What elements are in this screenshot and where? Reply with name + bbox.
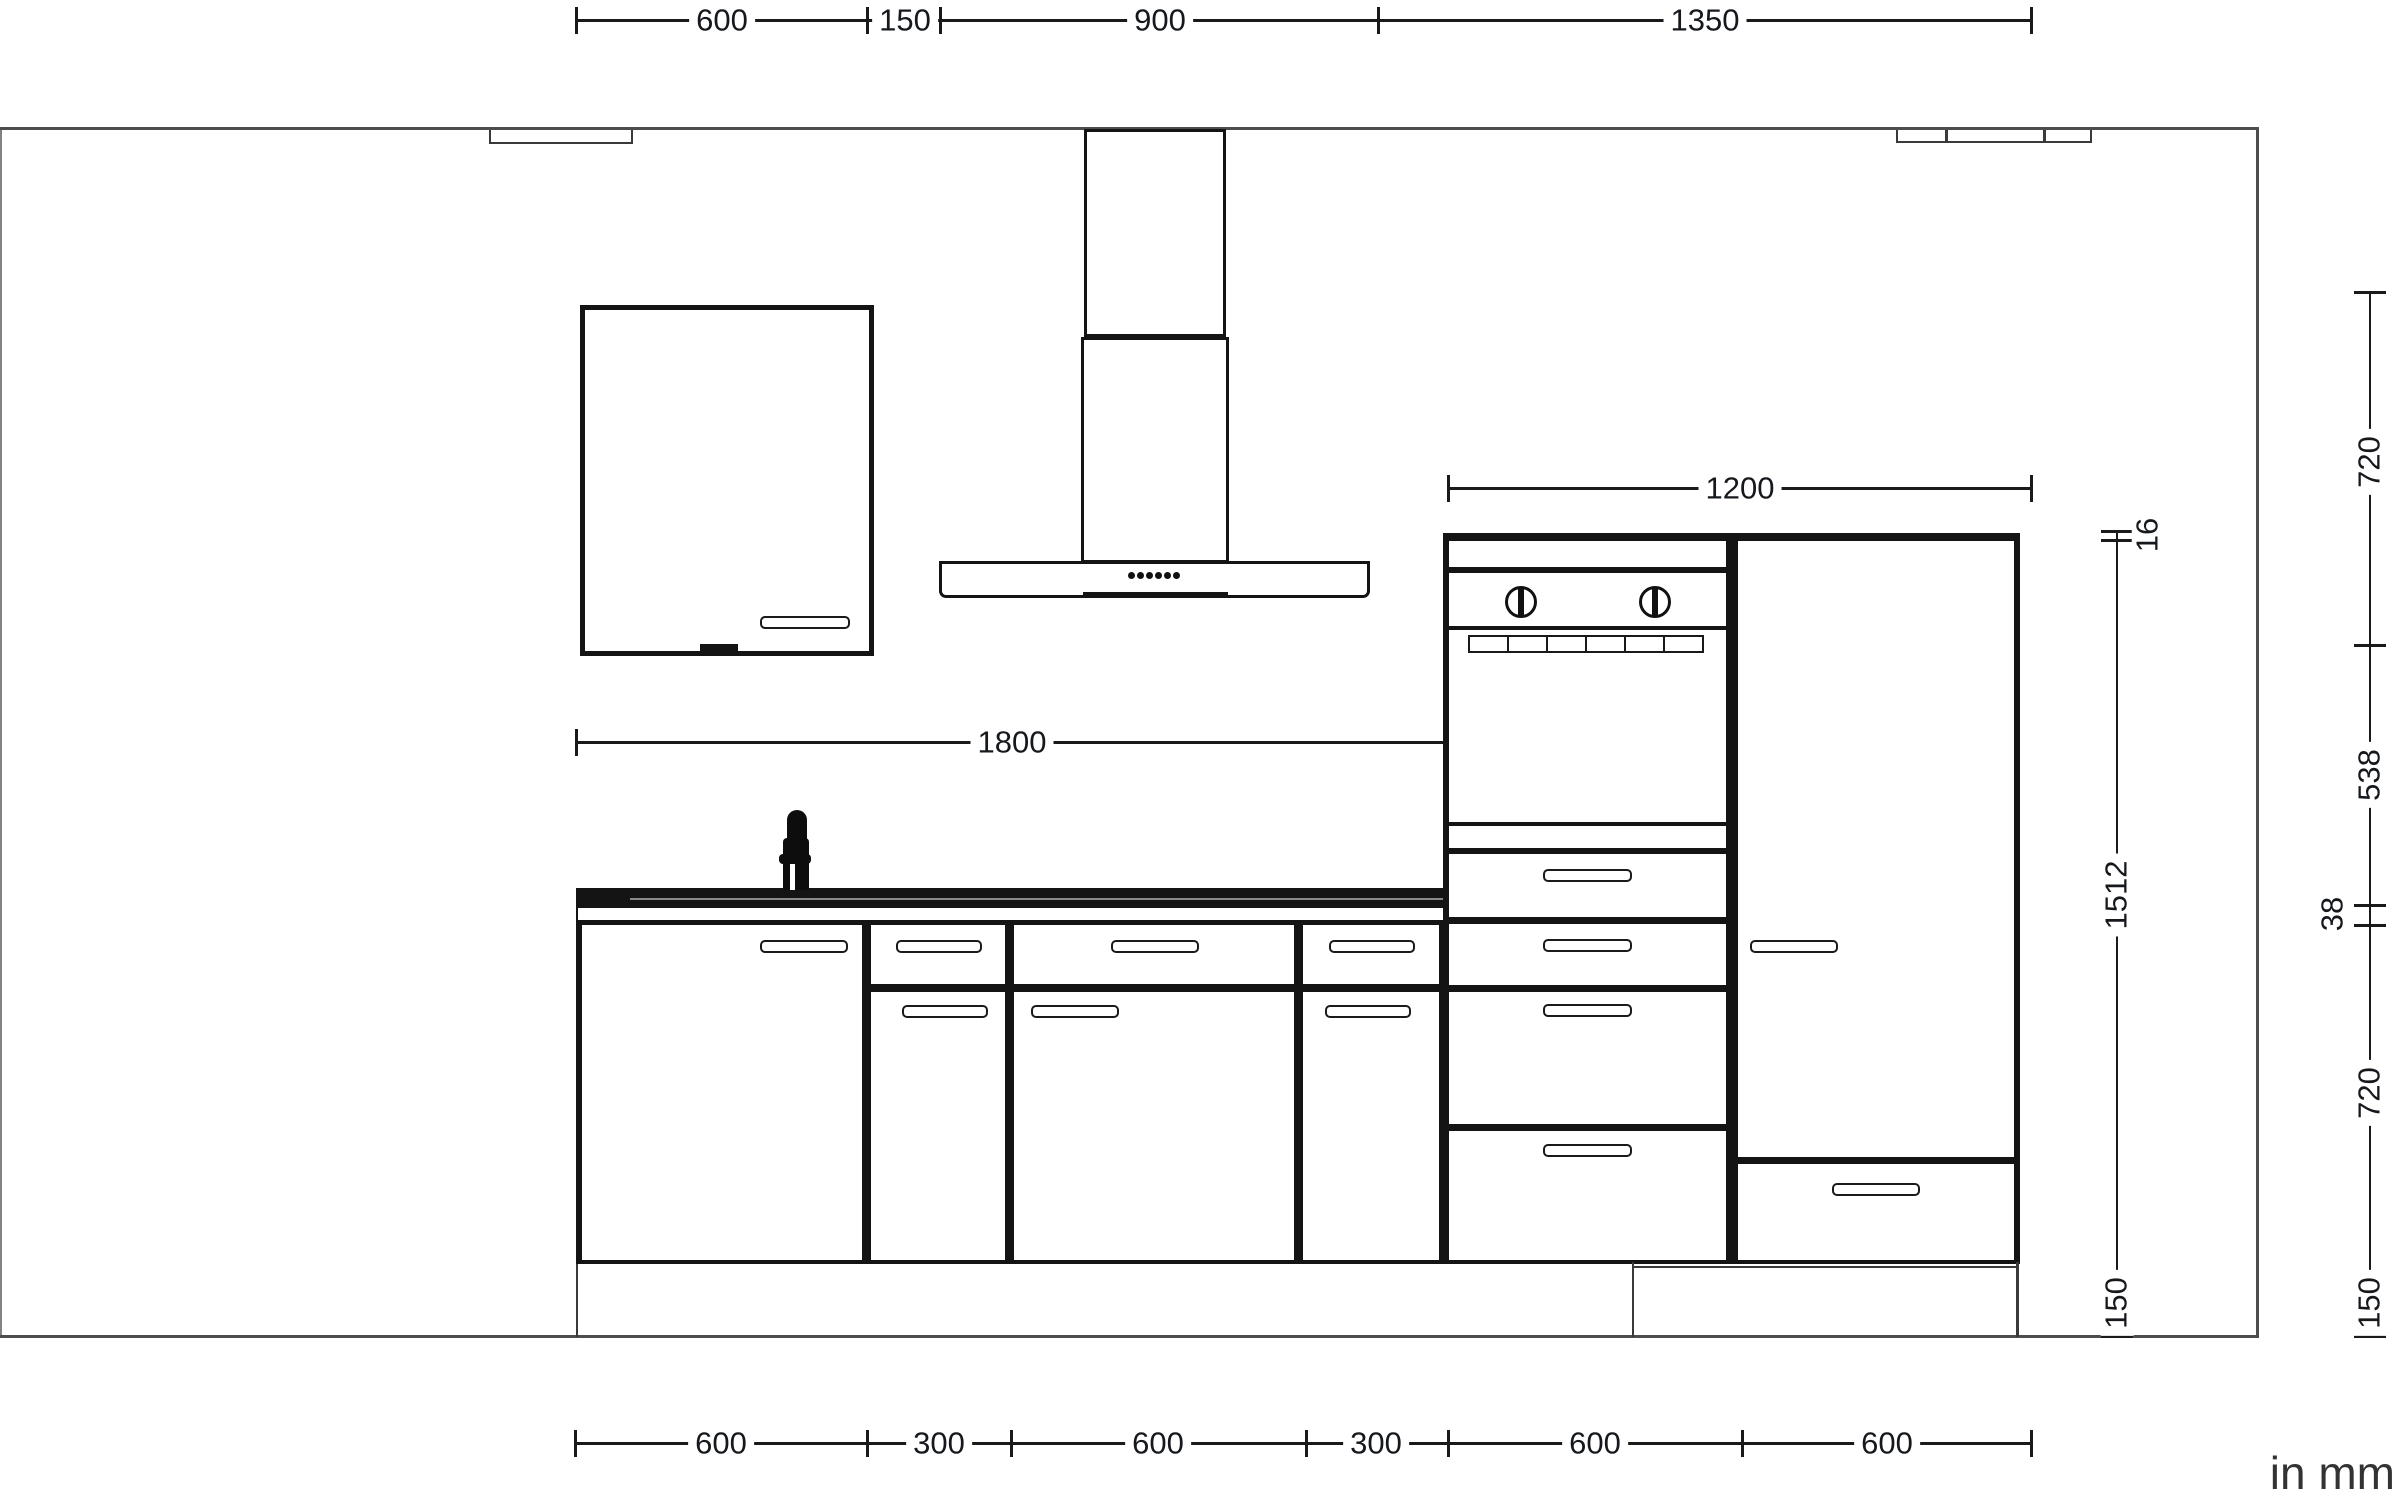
hood-control-buttons-icon[interactable]	[1128, 572, 1180, 579]
sink-base-door-handle	[760, 940, 848, 953]
dim-label-top-1: 600	[689, 5, 755, 38]
dim-label-bottom-5: 600	[1562, 1428, 1628, 1461]
sink-outline-groove	[630, 898, 1445, 900]
dim-label-16: 16	[2132, 511, 2165, 559]
base-300-door-1-handle	[902, 1005, 988, 1018]
dim-label-inner-150: 150	[2101, 1270, 2134, 1336]
dim-tick	[1377, 7, 1380, 34]
dim-tick	[866, 1430, 869, 1457]
bottom-dimension-line	[575, 1442, 2032, 1445]
wall-cabinet-bottom-tab	[700, 644, 738, 654]
hood-duct-lower[interactable]	[1081, 337, 1229, 563]
dim-tick	[1741, 1430, 1744, 1457]
plinth-left-edge	[576, 1264, 578, 1337]
base-300-drawer-1[interactable]	[871, 925, 1005, 984]
kitchen-elevation-drawing: 600 150 900 1350 1200 1800	[0, 0, 2400, 1503]
dim-label-1512: 1512	[2101, 854, 2134, 937]
dim-tick	[939, 7, 942, 34]
ceiling-notch-right-1	[1896, 130, 1947, 143]
dim-label-bottom-4: 300	[1343, 1428, 1409, 1461]
dim-label-outer-150: 150	[2354, 1270, 2387, 1336]
wall-cabinet[interactable]	[580, 305, 874, 656]
hood-underside-strip	[1083, 592, 1228, 598]
oven-door-handle	[1468, 635, 1704, 653]
base-600-drawer-handle	[1111, 940, 1199, 953]
dim-label-bottom-6: 600	[1854, 1428, 1920, 1461]
base-600-door[interactable]	[1014, 992, 1294, 1260]
wall-cabinet-handle	[760, 616, 850, 629]
oven-drawer-3-handle	[1543, 1004, 1632, 1017]
oven-drawer-2-handle	[1543, 939, 1632, 952]
wall-right-edge	[2256, 127, 2259, 1338]
dim-label-bottom-1: 600	[688, 1428, 754, 1461]
dim-tick	[2030, 7, 2033, 34]
oven-housing-top-strip	[1449, 541, 1726, 567]
dim-label-top-2: 150	[872, 5, 938, 38]
dim-label-bottom-3: 600	[1125, 1428, 1191, 1461]
dim-tick	[1447, 1430, 1450, 1457]
dim-label-38: 38	[2317, 890, 2350, 938]
dim-label-top-3: 900	[1127, 5, 1193, 38]
dim-tick	[574, 1430, 577, 1457]
top-dimension-line	[576, 19, 2032, 22]
dim-label-538: 538	[2354, 742, 2387, 808]
dim-tick	[575, 729, 578, 756]
dim-tick	[2354, 644, 2386, 647]
oven-unit-drawer-2[interactable]	[1449, 924, 1726, 985]
wall-left-edge	[0, 127, 2, 1338]
dim-tick	[1010, 1430, 1013, 1457]
dim-label-outer-720-bottom: 720	[2354, 1060, 2387, 1126]
plinth-joint	[1632, 1262, 1634, 1337]
dim-tick	[2354, 924, 2386, 927]
tall-cabinet-unit	[1732, 533, 2020, 1264]
dim-tick	[1447, 475, 1450, 502]
plinth-right-edge	[2016, 1262, 2019, 1337]
dim-tick	[2030, 1430, 2033, 1457]
floor-line	[0, 1335, 2259, 1338]
unit-note: in mm	[2225, 1446, 2395, 1500]
base-300-door-2-handle	[1325, 1005, 1411, 1018]
ceiling-notch-right-2	[1946, 130, 2045, 143]
dim-tick	[866, 7, 869, 34]
dim-tick	[2354, 291, 2386, 294]
base-300-drawer-2-handle	[1329, 940, 1415, 953]
dim-label-top-4: 1350	[1664, 5, 1747, 38]
tall-cabinet-drawer[interactable]	[1738, 1164, 2014, 1260]
dim-tick	[1305, 1430, 1308, 1457]
dim-label-outer-720-top: 720	[2354, 429, 2387, 495]
oven-drawer-1-handle	[1543, 869, 1632, 882]
base-600-drawer[interactable]	[1014, 925, 1294, 984]
base-300-drawer-2[interactable]	[1303, 925, 1439, 984]
dim-tick	[2030, 475, 2033, 502]
base-cabinet-run	[576, 920, 1443, 1264]
hood-duct-upper[interactable]	[1084, 129, 1226, 337]
base-300-door-1[interactable]	[871, 992, 1005, 1260]
sink-tap-highlight	[790, 864, 795, 890]
oven-drawer-4-handle	[1543, 1144, 1632, 1157]
tall-plinth-top-line	[1632, 1266, 2018, 1268]
sink-tap-column	[783, 860, 809, 890]
worktop[interactable]	[576, 888, 1449, 922]
oven-unit-drawer-1[interactable]	[1449, 854, 1726, 917]
oven-lower-strip	[1449, 826, 1726, 848]
dim-tick	[575, 7, 578, 34]
tall-cabinet-drawer-handle	[1832, 1183, 1920, 1196]
base-600-door-handle	[1031, 1005, 1119, 1018]
ceiling-notch-right-3	[2044, 130, 2092, 143]
dim-label-base-run: 1800	[971, 727, 1054, 760]
dim-label-hood-width: 1200	[1699, 473, 1782, 506]
tall-cabinet-door-handle	[1750, 940, 1838, 953]
oven-door[interactable]	[1449, 630, 1726, 822]
oven-control-panel[interactable]	[1449, 573, 1726, 626]
ceiling-notch-left	[489, 130, 633, 144]
base-300-drawer-1-handle	[896, 940, 982, 953]
oven-knob-icon[interactable]	[1505, 586, 1537, 618]
oven-knob-icon[interactable]	[1639, 586, 1671, 618]
base-300-door-2[interactable]	[1303, 992, 1439, 1260]
dim-label-bottom-2: 300	[906, 1428, 972, 1461]
sink-base-door[interactable]	[582, 925, 862, 1260]
dim-tick	[2354, 904, 2386, 907]
tall-cabinet-door[interactable]	[1738, 541, 2014, 1157]
